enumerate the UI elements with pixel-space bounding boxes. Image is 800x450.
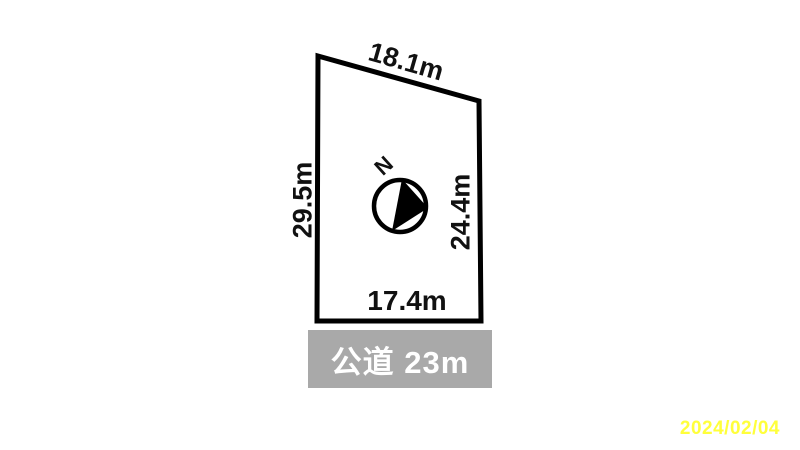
dimension-bottom-edge: 17.4m bbox=[367, 285, 446, 317]
road-label: 公道 23m bbox=[331, 337, 470, 382]
dimension-right-edge: 24.4m bbox=[446, 174, 477, 251]
land-plot-diagram: 18.1m 29.5m 24.4m 17.4m N 公道 23m 2024/02… bbox=[0, 0, 800, 450]
dimension-left-edge: 29.5m bbox=[288, 162, 319, 239]
date-stamp: 2024/02/04 bbox=[680, 418, 780, 440]
road-label-bar: 公道 23m bbox=[308, 330, 492, 388]
